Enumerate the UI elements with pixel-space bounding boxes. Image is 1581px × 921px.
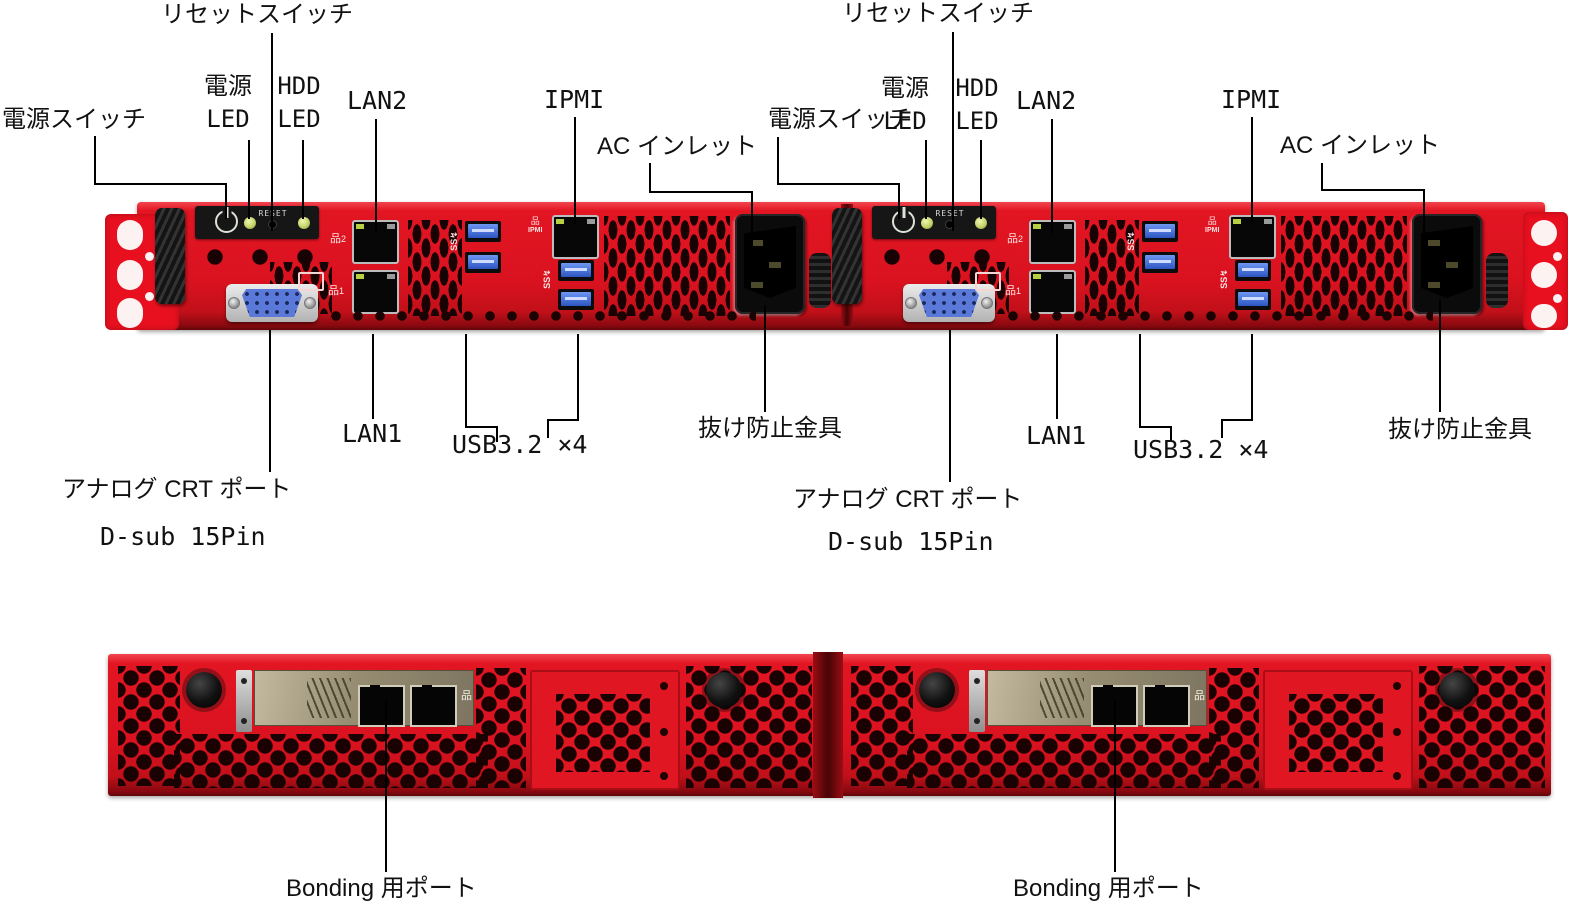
usb-port [558,260,594,281]
usb-port [1142,221,1178,242]
thumbscrew [919,672,955,708]
monitor-icon [975,272,1001,291]
usb-port [1235,289,1271,310]
bonding-port-2 [1143,685,1190,727]
vga-screw [304,297,316,309]
callout-lan1-2: LAN1 [1026,423,1086,449]
hdd-led [298,217,310,229]
usb-ss-icon: SS↯ [1219,269,1229,289]
usb-port [558,289,594,310]
ear-hole [145,252,154,261]
ear-cutout [117,260,143,290]
reset-label: RESET [929,209,971,218]
line-usb-b-1 [548,334,578,438]
usb-stack-b [1235,260,1271,314]
callout-ac-inlet-1: AC インレット [597,134,757,160]
callout-power-switch-1: 電源スイッチ [2,107,146,133]
ear-cutout [1531,220,1557,246]
callout-lan1-1: LAN1 [342,421,402,447]
rear-unit-1: 品 [110,658,815,794]
callout-dsub-2: D-sub 15Pin [828,529,994,555]
bonding-port-1 [1091,685,1138,727]
thumbscrew [706,672,742,708]
lan1-icon: 品1 [1005,286,1021,296]
lan2-icon: 品2 [1007,234,1023,244]
usb-stack-a [465,221,501,275]
vga-screw [981,297,993,309]
callout-power-led-1: 電源 LED [196,70,260,136]
power-button-icon [892,210,915,233]
hdd-led [975,217,987,229]
hex-vent [1289,694,1383,772]
callout-bonding-1: Bonding 用ポート [286,876,477,902]
callout-analog-crt-1: アナログ CRT ポート [62,477,291,503]
callout-hdd-led-2: HDD LED [948,72,1006,138]
callout-reset-switch-2: リセットスイッチ [833,1,1043,27]
ear-hole [145,292,154,301]
callout-ipmi-1: IPMI [544,87,604,113]
ac-inlet [735,214,805,314]
bonding-card-plate: 品 [987,670,1207,726]
lan2-port [352,220,399,264]
callout-retention-clip-1: 抜け防止金具 [698,416,842,442]
vga-screw [905,297,917,309]
usb-ss-icon: SS↯ [542,269,552,289]
usb-port [1235,260,1271,281]
unit-handle-latch [155,208,185,304]
vent-dot-row [1005,310,1433,322]
front-unit-2: RESET 品2 品1 SS↯ 品IPMI S [857,198,1517,330]
reset-switch-hole [945,220,954,229]
vga-dsub-insert [242,289,302,317]
ear-cutout [117,220,143,250]
control-panel: RESET [872,206,996,239]
hex-vent [1209,668,1259,788]
power-button-icon [215,210,238,233]
plate-print-marks [1040,678,1084,718]
psu-blank-panel [530,670,680,790]
usb-port [1142,252,1178,273]
hex-vent [907,734,1221,788]
control-panel: RESET [195,206,319,239]
lan2-icon: 品2 [330,234,346,244]
callout-analog-crt-2: アナログ CRT ポート [793,487,1022,513]
rear-unit-2: 品 [843,658,1548,794]
line-usb-a-1 [466,334,497,442]
ipmi-icon: 品IPMI [1205,216,1219,236]
line-usb-a-2 [1140,334,1171,442]
front-unit-1: RESET 品2 品1 SS↯ 品IPMI S [180,198,840,330]
card-bracket [969,670,985,732]
ear-hole [1553,294,1562,303]
bonding-port-1 [358,685,405,727]
reset-label: RESET [252,209,294,218]
usb-ss-icon: SS↯ [1126,231,1136,251]
thumbscrew [1439,672,1475,708]
ear-cutout [1531,304,1557,328]
hex-vent [118,666,180,786]
unit-handle-latch [832,208,862,304]
callout-ipmi-2: IPMI [1221,87,1281,113]
ipmi-port [1229,215,1276,259]
vent-dot-row [328,310,756,322]
usb-stack-b [558,260,594,314]
hex-vent [1419,666,1545,788]
rack-ear-right [1523,212,1568,330]
retention-clip [1486,253,1508,308]
ac-inlet [1412,214,1482,314]
retention-clip [809,253,831,308]
callout-lan2-1: LAN2 [347,88,407,114]
bonding-card-plate: 品 [254,670,474,726]
callout-bonding-2: Bonding 用ポート [1013,876,1204,902]
network-icon: 品 [461,691,472,701]
vga-screw [228,297,240,309]
callout-reset-switch-1: リセットスイッチ [152,2,362,28]
card-bracket [236,670,252,732]
callout-retention-clip-2: 抜け防止金具 [1388,417,1532,443]
hex-vent [686,666,812,788]
lan2-port [1029,220,1076,264]
hex-vent [851,666,913,786]
ipmi-port [552,215,599,259]
monitor-icon [298,272,324,291]
usb-ss-icon: SS↯ [449,231,459,251]
ipmi-icon: 品IPMI [528,216,542,236]
ear-hole [1553,252,1562,261]
vent-slots [604,216,730,316]
vent-slots [1281,216,1407,316]
lan1-icon: 品1 [328,286,344,296]
vga-dsub-insert [919,289,979,317]
callout-usb-2: USB3.2 ×4 [1133,437,1268,463]
hex-vent [174,734,488,788]
diagram-stage: リセットスイッチ 電源スイッチ 電源 LED HDD LED LAN2 IPMI… [0,0,1581,921]
reset-switch-hole [268,220,277,229]
callout-ac-inlet-2: AC インレット [1280,133,1440,159]
lan1-port [1029,270,1076,314]
line-usb-b-2 [1222,334,1252,438]
unit-seam [813,652,843,798]
callout-dsub-1: D-sub 15Pin [100,524,266,550]
ear-cutout [1531,262,1557,288]
callout-lan2-2: LAN2 [1016,88,1076,114]
bonding-port-2 [410,685,457,727]
ear-cutout [117,298,143,328]
psu-blank-panel [1263,670,1413,790]
hex-vent [556,694,650,772]
front-view-chassis: RESET 品2 品1 SS↯ 品IPMI S [105,198,1568,338]
rear-view-chassis: 品 品 [108,650,1551,802]
power-led [921,217,933,229]
lan1-port [352,270,399,314]
callout-hdd-led-1: HDD LED [270,70,328,136]
callout-usb-1: USB3.2 ×4 [452,432,587,458]
power-led [244,217,256,229]
usb-stack-a [1142,221,1178,275]
usb-port [465,252,501,273]
hex-vent [476,668,526,788]
usb-port [465,221,501,242]
callout-power-led-2: 電源 LED [873,72,937,138]
thumbscrew [186,672,222,708]
plate-print-marks [307,678,351,718]
network-icon: 品 [1194,691,1205,701]
